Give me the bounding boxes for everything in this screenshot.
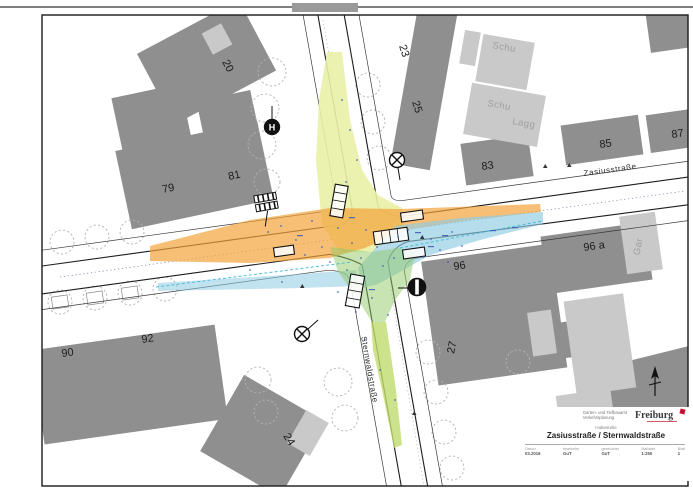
plan-title: Zasiusstraße / Sternwaldstraße <box>523 431 689 440</box>
building-label-81: 81 <box>227 169 241 183</box>
freiburg-logo: Freiburg <box>635 410 685 422</box>
field-massstab: Maßstab 1:250 <box>641 447 655 456</box>
logo-red-mark-icon <box>679 408 685 414</box>
field-bearbeitet: bearbeitet GuT <box>563 447 579 456</box>
building-label-92: 92 <box>141 332 155 346</box>
building-label-85: 85 <box>599 137 613 151</box>
building-label-90: 90 <box>61 346 75 360</box>
bus-stop-letter: H <box>269 123 276 133</box>
plan-subtitle: Haltestelle <box>523 425 689 430</box>
building-label-83: 83 <box>481 159 495 173</box>
title-block: Garten- und Tiefbauamt Verkehrsplanung F… <box>523 407 689 481</box>
building-label-27: 27 <box>445 340 459 354</box>
field-gezeichnet: gezeichnet GuT <box>601 447 618 456</box>
building-label-96: 96 <box>453 259 467 273</box>
building-label-79: 79 <box>161 182 175 196</box>
department-text: Garten- und Tiefbauamt Verkehrsplanung <box>583 410 627 421</box>
title-block-fields: Datum 03.2016 bearbeitet GuT gezeichnet … <box>525 444 685 456</box>
building-label-87: 87 <box>671 127 685 141</box>
building-fragment-top <box>292 3 358 12</box>
site-plan-page: H <box>0 0 693 495</box>
field-blatt: Blatt 1 <box>678 447 685 456</box>
field-datum: Datum 03.2016 <box>525 447 541 456</box>
